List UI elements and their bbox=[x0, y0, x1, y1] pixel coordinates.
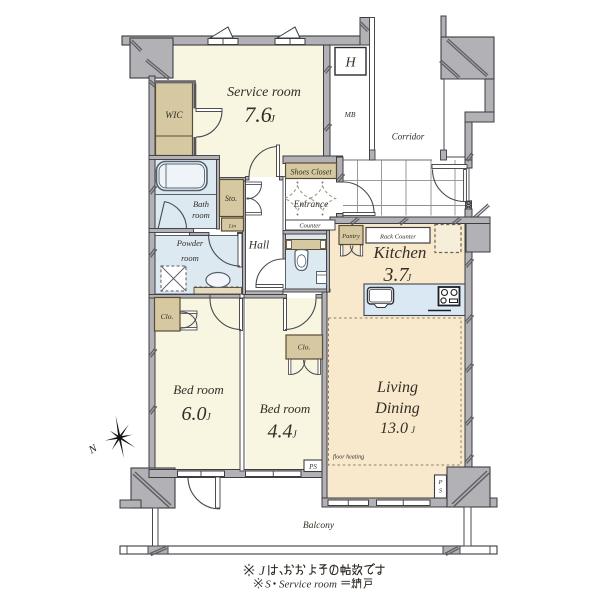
svg-text:P: P bbox=[438, 479, 443, 486]
svg-text:Rack Counter: Rack Counter bbox=[379, 234, 416, 241]
svg-text:floor heating: floor heating bbox=[333, 454, 364, 461]
svg-text:H: H bbox=[344, 56, 356, 71]
svg-text:room: room bbox=[181, 253, 199, 263]
svg-text:S: S bbox=[265, 579, 271, 591]
svg-text:Balcony: Balcony bbox=[303, 521, 335, 531]
svg-text:Shoes Closet: Shoes Closet bbox=[290, 168, 332, 177]
svg-text:J: J bbox=[407, 273, 412, 284]
svg-text:Living: Living bbox=[376, 379, 418, 396]
svg-text:Hall: Hall bbox=[248, 240, 269, 252]
svg-text:3.7: 3.7 bbox=[383, 264, 410, 286]
svg-text:4.4: 4.4 bbox=[268, 421, 293, 443]
svg-text:Kitchen: Kitchen bbox=[373, 243, 427, 262]
svg-text:Clo.: Clo. bbox=[298, 343, 311, 352]
svg-text:Service room: Service room bbox=[279, 579, 337, 591]
svg-text:PS: PS bbox=[308, 463, 317, 471]
svg-text:Corridor: Corridor bbox=[392, 132, 425, 142]
svg-text:room: room bbox=[192, 210, 210, 220]
svg-text:MB: MB bbox=[344, 110, 356, 119]
svg-text:Powder: Powder bbox=[176, 238, 204, 248]
svg-text:Bed room: Bed room bbox=[173, 382, 223, 397]
svg-text:13.0: 13.0 bbox=[380, 420, 408, 437]
svg-text:J: J bbox=[206, 412, 211, 423]
svg-text:J: J bbox=[292, 430, 297, 441]
svg-text:7.6: 7.6 bbox=[244, 102, 272, 127]
svg-text:Service room: Service room bbox=[227, 85, 301, 100]
svg-text:Entrance: Entrance bbox=[293, 200, 329, 210]
svg-text:Counter: Counter bbox=[299, 223, 321, 230]
svg-text:Dining: Dining bbox=[374, 400, 419, 417]
svg-text:Clo.: Clo. bbox=[161, 312, 174, 321]
svg-text:Bed room: Bed room bbox=[260, 401, 310, 416]
svg-text:Bath: Bath bbox=[193, 199, 209, 209]
svg-text:WIC: WIC bbox=[165, 111, 183, 121]
svg-text:Lin: Lin bbox=[228, 224, 237, 230]
svg-text:6.0: 6.0 bbox=[182, 403, 207, 425]
svg-text:Pantry: Pantry bbox=[341, 233, 360, 240]
svg-text:Sto.: Sto. bbox=[225, 194, 237, 203]
